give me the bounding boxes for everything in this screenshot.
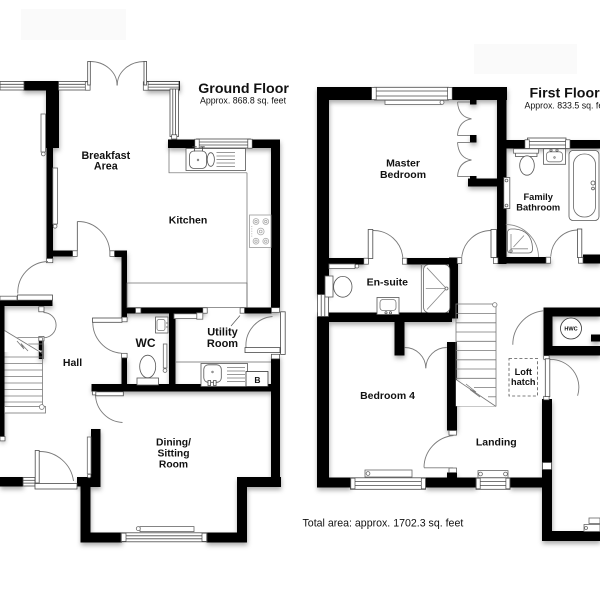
svg-text:Master: Master: [386, 158, 420, 170]
svg-text:WC: WC: [136, 336, 156, 350]
svg-text:Approx. 833.5 sq. feet: Approx. 833.5 sq. feet: [525, 101, 600, 111]
svg-text:Bathroom: Bathroom: [516, 202, 560, 212]
svg-text:En-suite: En-suite: [367, 277, 409, 289]
svg-text:Approx. 868.8 sq. feet: Approx. 868.8 sq. feet: [200, 95, 287, 105]
svg-text:hatch: hatch: [511, 377, 536, 387]
svg-text:Dining/: Dining/: [156, 438, 191, 449]
svg-text:Area: Area: [94, 161, 119, 173]
svg-text:Sitting: Sitting: [157, 449, 189, 460]
svg-text:Kitchen: Kitchen: [169, 214, 208, 226]
svg-text:Loft: Loft: [515, 367, 532, 377]
svg-text:Room: Room: [207, 338, 238, 350]
svg-text:Family: Family: [523, 192, 553, 202]
svg-text:Hall: Hall: [63, 357, 82, 369]
svg-text:Bedroom: Bedroom: [380, 169, 426, 181]
svg-text:Utility: Utility: [207, 327, 238, 339]
svg-text:HWC: HWC: [564, 326, 577, 332]
svg-text:B: B: [254, 375, 260, 385]
svg-text:Total area: approx. 1702.3 sq.: Total area: approx. 1702.3 sq. feet: [303, 518, 464, 530]
svg-text:First Floor: First Floor: [530, 85, 600, 101]
svg-text:Bedroom 4: Bedroom 4: [360, 390, 415, 402]
svg-text:Room: Room: [159, 460, 188, 471]
svg-text:Landing: Landing: [476, 437, 517, 449]
